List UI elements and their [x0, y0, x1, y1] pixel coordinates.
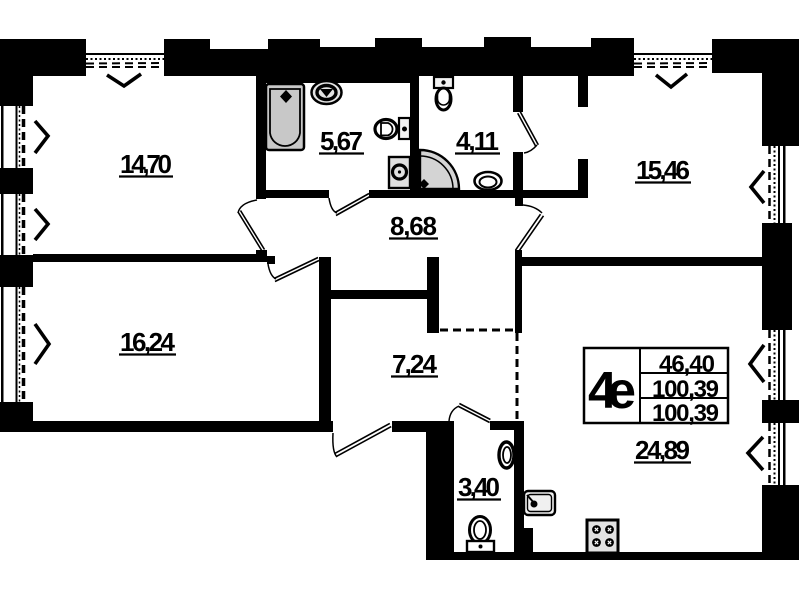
svg-text:4,11: 4,11: [456, 126, 499, 156]
svg-text:100,39: 100,39: [652, 376, 719, 403]
svg-text:16,24: 16,24: [120, 327, 176, 357]
svg-text:100,39: 100,39: [652, 400, 719, 427]
svg-text:15,46: 15,46: [636, 155, 690, 185]
svg-text:4е: 4е: [588, 362, 636, 420]
svg-text:8,68: 8,68: [390, 211, 437, 241]
svg-text:5,67: 5,67: [320, 126, 363, 156]
svg-text:14,70: 14,70: [120, 149, 172, 179]
svg-text:24,89: 24,89: [635, 435, 690, 465]
svg-text:3,40: 3,40: [458, 472, 500, 502]
svg-text:46,40: 46,40: [659, 351, 715, 378]
svg-text:7,24: 7,24: [392, 349, 438, 379]
